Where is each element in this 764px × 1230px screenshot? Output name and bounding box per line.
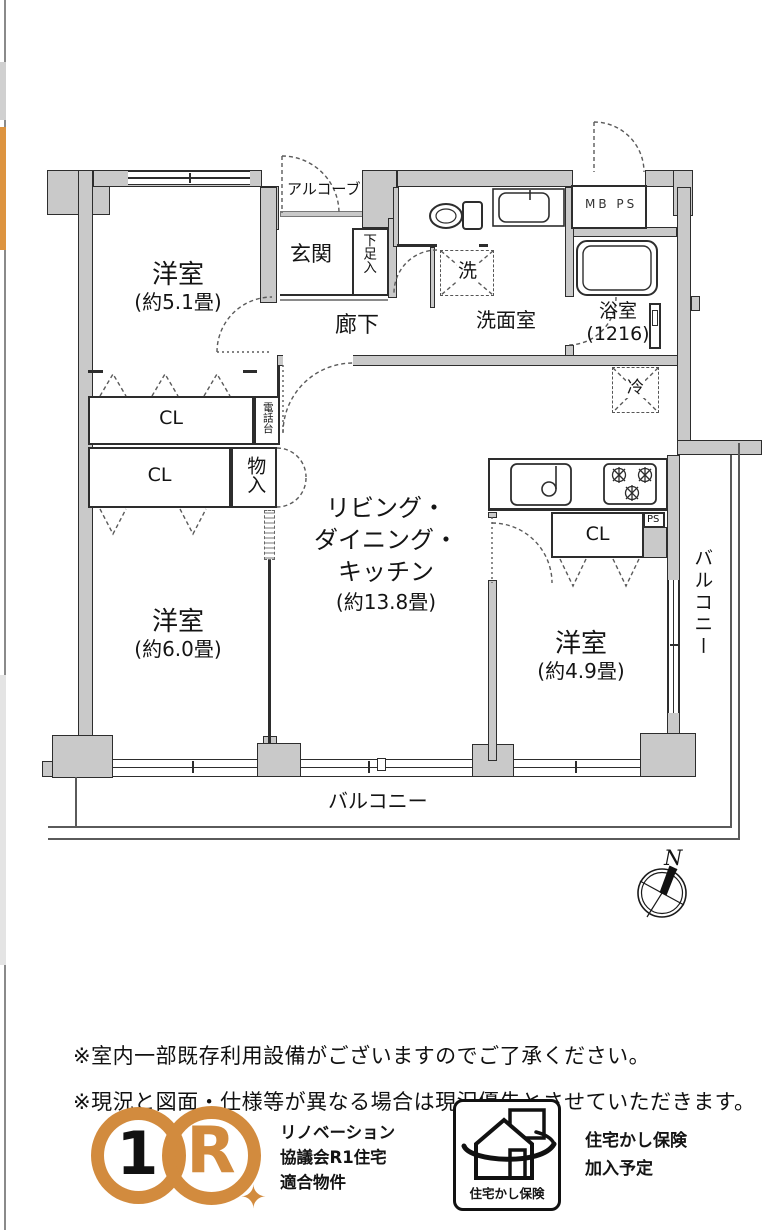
room-label-hallway: 廊下 bbox=[335, 314, 379, 339]
room-size-bedroom3: (約4.9畳) bbox=[530, 660, 632, 682]
room-label-bathroom: 浴室 bbox=[578, 301, 658, 322]
room-label-laundry: 洗 bbox=[457, 261, 478, 282]
washbasin-icon bbox=[499, 193, 549, 222]
r1-text-line: リノベーション bbox=[280, 1124, 395, 1142]
room-label-ldk-3: キッチン bbox=[300, 559, 472, 586]
compass-north-label: N bbox=[664, 847, 682, 871]
bifold-door bbox=[180, 509, 206, 534]
warranty-house-icon bbox=[458, 1106, 558, 1184]
warranty-text-line: 住宅かし保険 bbox=[585, 1132, 687, 1151]
note-line: ※室内一部既存利用設備がございますのでご了承ください。 bbox=[73, 1040, 650, 1070]
bifold-door bbox=[100, 374, 126, 396]
toilet-icon bbox=[463, 202, 482, 229]
bifold-door bbox=[560, 559, 586, 586]
r1-text-line: 協議会R1住宅 bbox=[280, 1149, 387, 1167]
label-pipe-space: PS bbox=[647, 514, 659, 525]
label-fridge: 冷 bbox=[626, 379, 645, 398]
label-closet-1: CL bbox=[88, 408, 254, 429]
note-line: ※現況と図面・仕様等が異なる場合は現況優先とさせていただきます。 bbox=[73, 1086, 756, 1116]
bifold-door bbox=[613, 559, 639, 586]
label-mb-ps: MB PS bbox=[585, 198, 637, 211]
room-label-bedroom1: 洋室 bbox=[127, 261, 229, 290]
label-closet-3: CL bbox=[551, 524, 644, 545]
room-label-washroom: 洗面室 bbox=[476, 309, 536, 331]
room-size-ldk: (約13.8畳) bbox=[300, 591, 472, 613]
room-label-ldk-2: ダイニング・ bbox=[300, 527, 472, 554]
label-balcony-bottom: バルコニー bbox=[328, 790, 428, 812]
room-size-bedroom2: (約6.0畳) bbox=[128, 638, 228, 660]
r1-star-icon: ✦ bbox=[240, 1180, 267, 1216]
room-size-bathroom: (1216) bbox=[578, 324, 658, 345]
r1-letter: R bbox=[172, 1116, 250, 1188]
compass-icon bbox=[638, 866, 686, 918]
door-arc bbox=[283, 363, 353, 433]
warranty-badge-label: 住宅かし保険 bbox=[456, 1187, 558, 1201]
warranty-text-line: 加入予定 bbox=[585, 1160, 653, 1179]
label-phone-stand: 電話台 bbox=[261, 402, 273, 434]
bathtub-icon bbox=[583, 246, 651, 290]
floorplan-page: 洋室 (約5.1畳) アルコーブ 玄関 下足入 廊下 洗面室 洗 浴室 (121… bbox=[0, 0, 764, 1230]
kitchen-tap bbox=[542, 482, 556, 496]
warranty-badge: 住宅かし保険 bbox=[453, 1099, 561, 1211]
room-label-bedroom3: 洋室 bbox=[530, 630, 632, 659]
door-arc bbox=[594, 122, 644, 172]
bifold-door bbox=[204, 374, 230, 396]
door-arc bbox=[277, 448, 306, 477]
bifold-door bbox=[152, 374, 178, 396]
label-closet-2: CL bbox=[88, 465, 231, 486]
bifold-door bbox=[100, 509, 126, 534]
label-balcony-right: バルコニー bbox=[691, 548, 712, 658]
door-arc bbox=[492, 523, 552, 583]
room-label-shoe-box: 下足入 bbox=[360, 233, 375, 274]
room-label-genkan: 玄関 bbox=[290, 243, 332, 267]
toilet-icon bbox=[436, 209, 456, 223]
room-label-alcove: アルコーブ bbox=[287, 181, 361, 198]
label-storage: 物入 bbox=[244, 456, 265, 494]
room-label-bedroom2: 洋室 bbox=[128, 608, 228, 637]
room-size-bedroom1: (約5.1畳) bbox=[127, 291, 229, 313]
r1-text-line: 適合物件 bbox=[280, 1174, 346, 1192]
r1-number: 1 bbox=[100, 1121, 175, 1188]
room-label-ldk-1: リビング・ bbox=[300, 495, 472, 522]
kitchen-sink-icon bbox=[511, 464, 571, 505]
door-arc bbox=[394, 250, 437, 293]
